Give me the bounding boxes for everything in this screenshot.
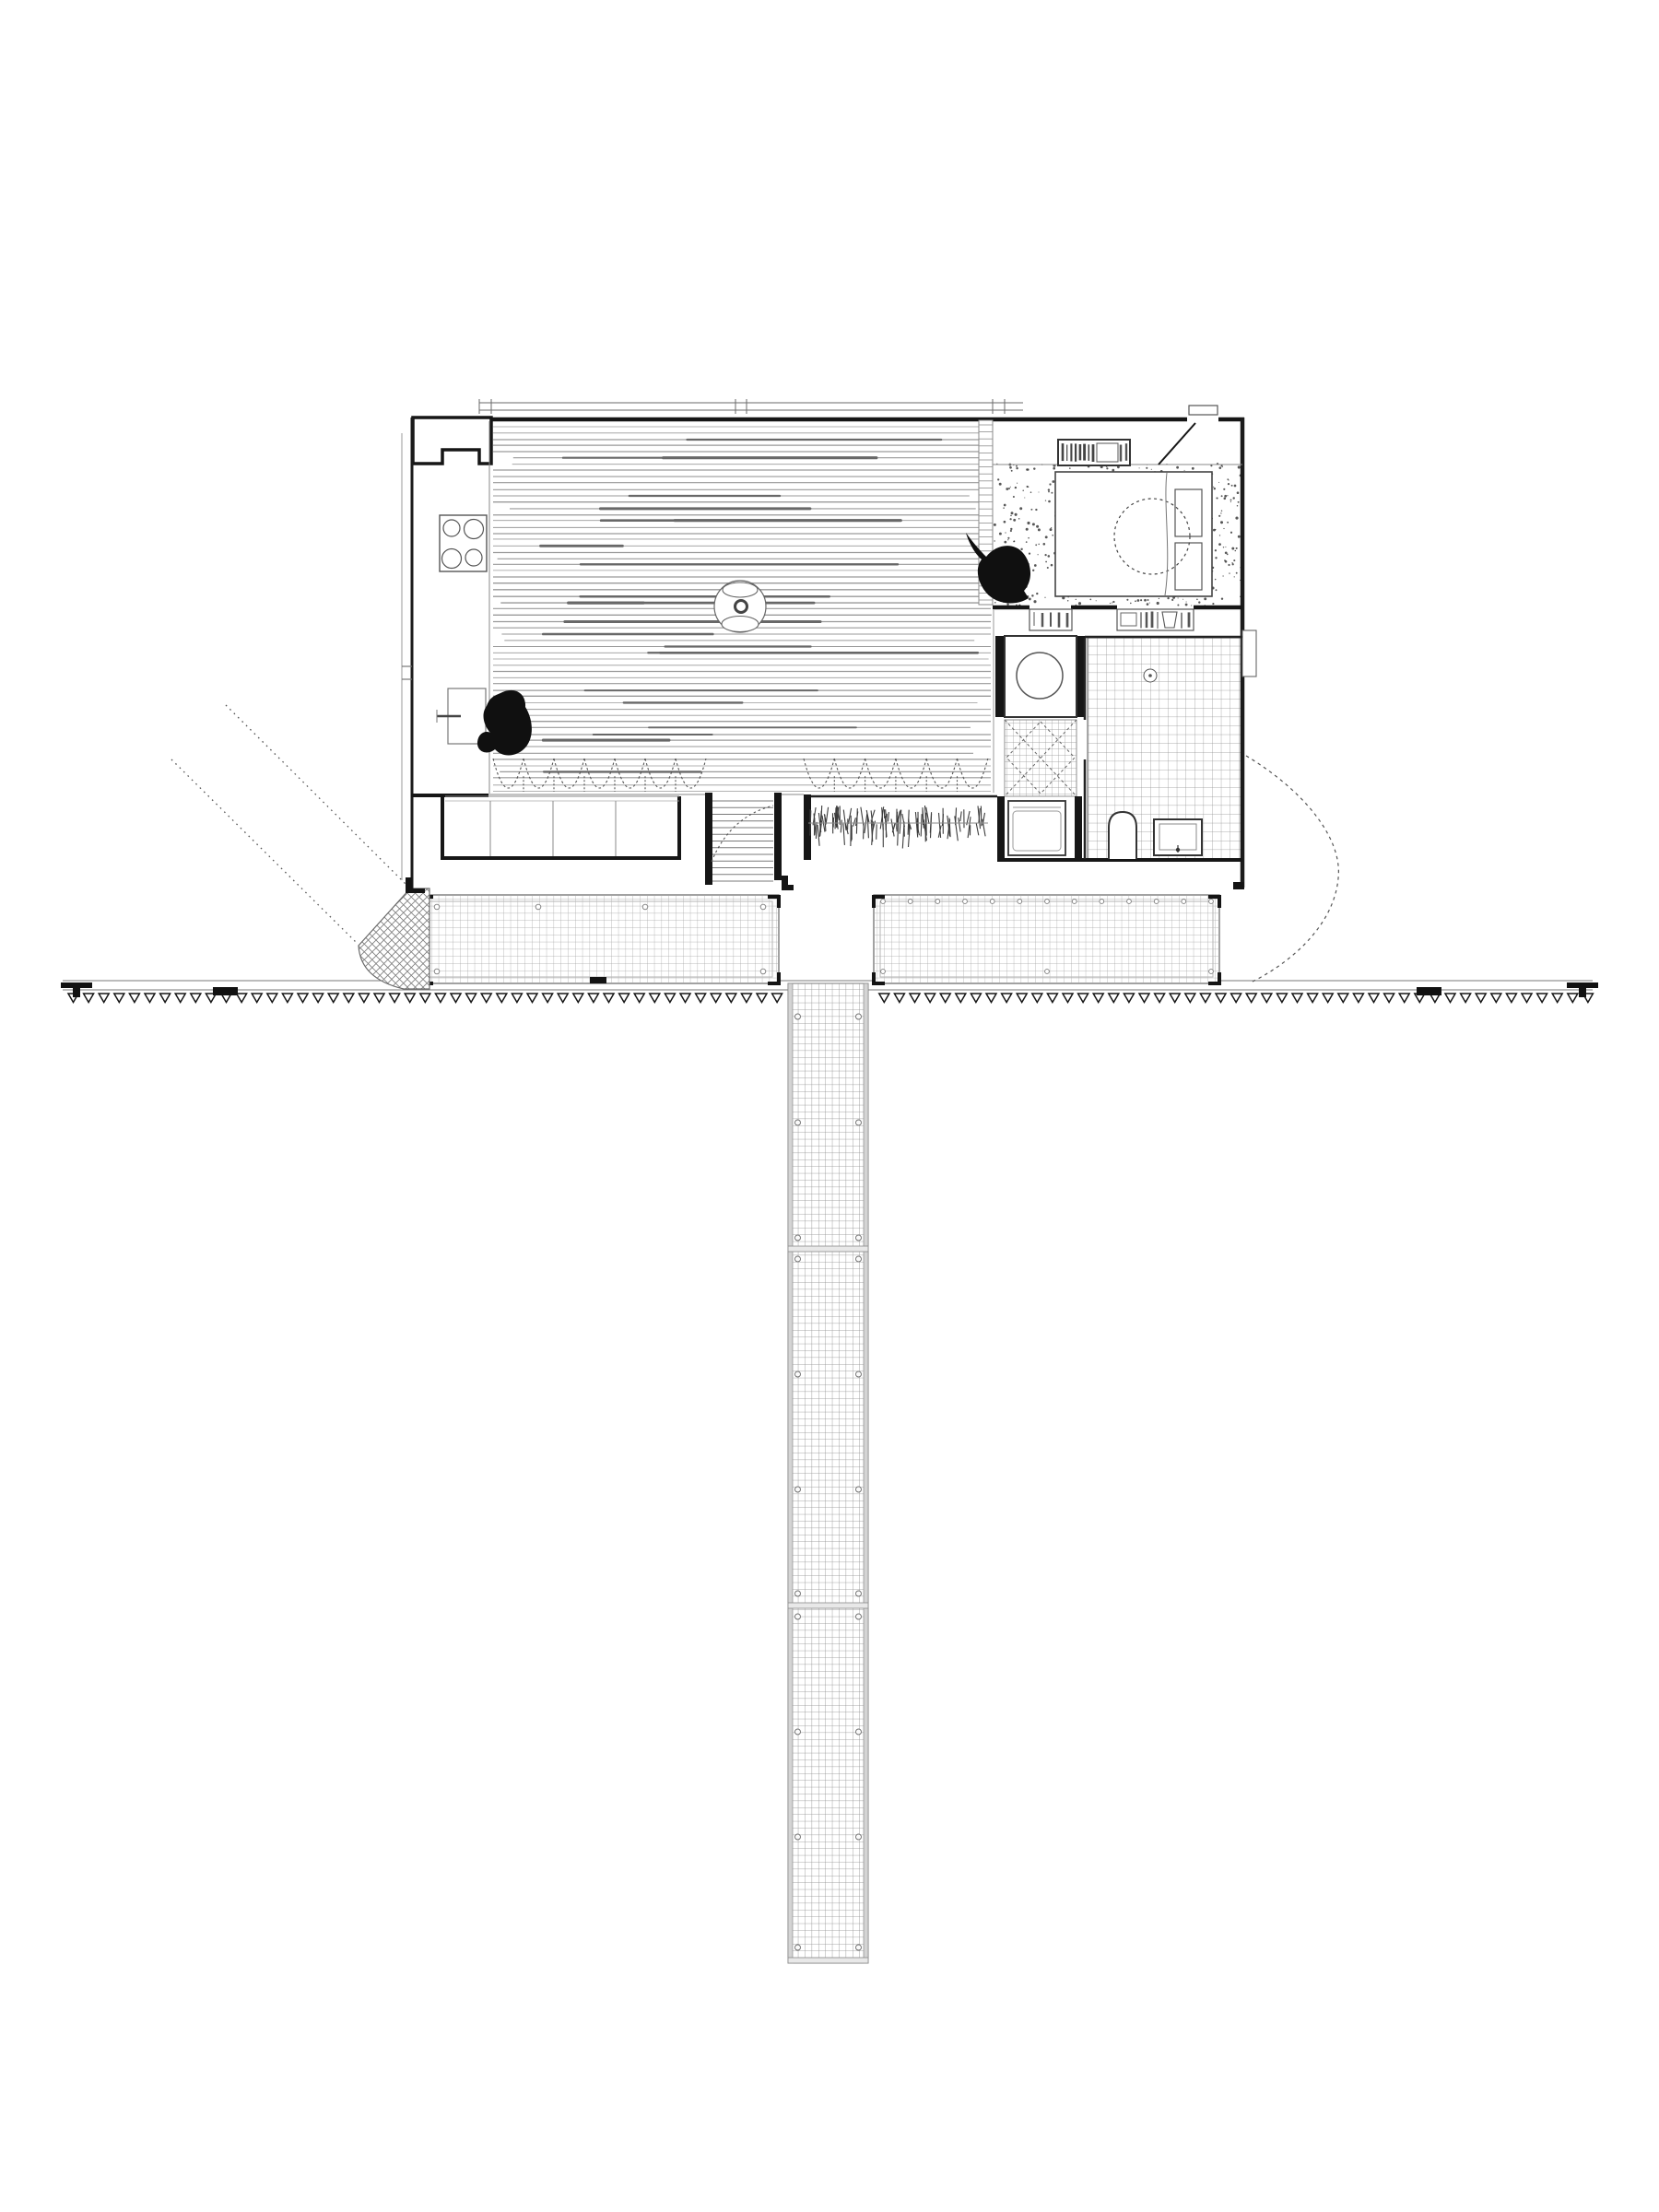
- bedroom-carpet: [1009, 466, 1012, 469]
- pier-fixings: [795, 1256, 801, 1262]
- bedroom-carpet: [1030, 491, 1032, 493]
- shore-anchor: [213, 987, 238, 995]
- deck-fixings: [881, 970, 886, 974]
- bedroom-carpet: [1051, 564, 1053, 567]
- deck-left: [422, 895, 779, 983]
- bedroom-carpet: [1051, 492, 1053, 494]
- deck-fixings: [760, 904, 766, 910]
- bedroom-carpet: [1033, 467, 1035, 469]
- bedroom-carpet: [1213, 487, 1214, 488]
- deck-right: [874, 895, 1219, 983]
- east-corner-bracket: [1233, 882, 1244, 889]
- bedroom-carpet: [1224, 498, 1227, 500]
- bedroom-carpet: [1013, 519, 1016, 522]
- bedroom-carpet: [1215, 557, 1217, 559]
- bedroom-carpet: [1006, 488, 1008, 490]
- bedroom-carpet: [1076, 599, 1077, 600]
- bedroom-carpet: [1006, 603, 1008, 605]
- bedroom-carpet: [1213, 529, 1216, 532]
- bedroom-carpet: [1223, 547, 1224, 547]
- bedroom-carpet: [1016, 467, 1018, 469]
- bedroom-carpet: [1221, 597, 1223, 599]
- bedroom-carpet: [1017, 483, 1018, 484]
- deck-fixings: [535, 904, 541, 910]
- pier-boardwalk: [864, 983, 868, 1963]
- bedroom-carpet: [1044, 597, 1045, 598]
- deck-fixings: [1182, 900, 1186, 904]
- bedroom-carpet: [1182, 599, 1183, 600]
- pier-fixings: [856, 1614, 862, 1619]
- bedroom-carpet: [1112, 603, 1112, 604]
- bedroom-carpet: [1191, 605, 1192, 606]
- deck-fixings: [1100, 900, 1104, 904]
- doormat-rug: [877, 824, 877, 840]
- bedroom-carpet: [1204, 597, 1206, 600]
- entry-door-gap: [1187, 414, 1218, 424]
- bedroom-carpet: [1010, 530, 1012, 532]
- pier-fixings: [856, 1945, 862, 1950]
- deck-fixings: [908, 900, 912, 904]
- bedroom-carpet: [1130, 603, 1132, 605]
- pier-fixings: [856, 1487, 862, 1492]
- bedroom-carpet: [1231, 485, 1233, 487]
- bedroom-carpet: [1234, 576, 1235, 577]
- pier-fixings: [795, 1235, 801, 1241]
- bedroom-carpet: [1218, 515, 1220, 517]
- bedroom-carpet: [1238, 535, 1241, 538]
- bedroom-carpet: [1010, 515, 1012, 517]
- bedroom-carpet: [1196, 598, 1198, 600]
- bedroom-carpet: [1228, 564, 1230, 566]
- pier-fixings: [795, 1729, 801, 1735]
- bedroom-carpet: [1019, 507, 1022, 510]
- doormat-rug: [864, 824, 865, 840]
- bedroom-carpet: [1216, 589, 1218, 591]
- bedroom-carpet: [1225, 560, 1228, 563]
- pier-fixings: [795, 1014, 801, 1019]
- bedroom-carpet: [1135, 600, 1136, 602]
- bedroom-carpet: [1139, 467, 1140, 468]
- pier-fixings: [856, 1591, 862, 1596]
- page: [0, 0, 1659, 2212]
- stove-wall: [995, 636, 1005, 717]
- deck-fixings: [1127, 900, 1132, 904]
- bedroom-carpet: [1022, 490, 1023, 491]
- pier-fixings: [795, 1945, 801, 1950]
- pillow: [1175, 543, 1202, 590]
- bedroom-carpet: [994, 602, 996, 604]
- deck-fixings: [1045, 970, 1050, 974]
- bedroom-carpet: [1215, 579, 1216, 580]
- bedroom-carpet: [1184, 470, 1185, 471]
- basin-on-shelf: [1162, 612, 1177, 628]
- deck-fixings: [881, 900, 886, 904]
- bedroom-carpet: [1218, 482, 1219, 483]
- bedroom-carpet: [994, 524, 996, 526]
- bedroom-carpet: [1052, 535, 1053, 536]
- bedroom-carpet: [1106, 467, 1108, 469]
- step-jamb: [705, 793, 712, 885]
- bedroom-carpet: [1231, 562, 1232, 563]
- pier-boardwalk: [788, 983, 868, 1963]
- bedroom-carpet: [1036, 593, 1038, 594]
- bedroom-carpet: [1222, 575, 1223, 576]
- bedroom-carpet: [1171, 599, 1173, 601]
- bedroom-carpet: [1151, 469, 1152, 470]
- bedroom-carpet: [1007, 539, 1008, 540]
- pier-boardwalk: [793, 983, 864, 1963]
- deck-fixings: [1209, 970, 1214, 974]
- bedroom-carpet: [1067, 600, 1069, 602]
- bedroom-carpet: [1225, 547, 1226, 547]
- bedroom-carpet: [1045, 535, 1048, 538]
- bedroom-carpet: [1032, 523, 1035, 525]
- bedroom-carpet: [1051, 527, 1052, 528]
- bedroom-carpet: [1186, 601, 1187, 602]
- bedroom-carpet: [1008, 488, 1010, 489]
- bedroom-carpet: [1004, 504, 1006, 507]
- bedroom-carpet: [1214, 488, 1216, 489]
- bedroom-carpet: [1009, 518, 1011, 520]
- bedroom-carpet: [1027, 468, 1029, 470]
- bedroom-carpet: [1018, 518, 1020, 520]
- bedroom-carpet: [1007, 537, 1009, 539]
- bedroom-carpet: [1045, 500, 1046, 500]
- bedroom-carpet: [1028, 487, 1029, 488]
- bedroom-carpet: [1053, 467, 1055, 470]
- bedroom-carpet: [1029, 552, 1030, 554]
- shore-anchor: [1417, 987, 1441, 995]
- bedroom-carpet: [1223, 488, 1225, 490]
- bedroom-carpet: [1233, 559, 1235, 561]
- bedroom-carpet: [1126, 599, 1128, 601]
- bedroom-carpet: [1230, 501, 1231, 502]
- bedroom-carpet: [1220, 521, 1223, 524]
- bedroom-carpet: [1178, 597, 1179, 598]
- pier-fixings: [856, 1014, 862, 1019]
- bedroom-carpet: [1220, 512, 1221, 513]
- bedroom-carpet: [1228, 483, 1230, 485]
- bedroom-carpet: [1112, 601, 1114, 603]
- bedroom-fixtures: [1121, 613, 1136, 626]
- bedroom-carpet: [1198, 601, 1200, 603]
- bedroom-carpet: [1048, 555, 1051, 558]
- bedroom-carpet: [1016, 465, 1018, 467]
- bedroom-carpet: [1026, 541, 1028, 543]
- pier-fixings: [856, 1834, 862, 1840]
- bedroom-carpet: [1032, 570, 1034, 571]
- fan-blade: [722, 617, 759, 632]
- pier-boardwalk: [788, 983, 793, 1963]
- entry-landing: [1189, 406, 1218, 415]
- bedroom-carpet: [1030, 509, 1032, 511]
- bedroom-carpet: [1078, 602, 1081, 605]
- pier-fixings: [856, 1120, 862, 1125]
- bedroom-carpet: [1236, 572, 1238, 574]
- bedroom-carpet: [1149, 603, 1150, 604]
- bedroom-carpet: [1004, 521, 1006, 524]
- bedroom-carpet: [1029, 597, 1031, 600]
- deck-fixings: [642, 904, 648, 910]
- pier-fixings: [856, 1371, 862, 1377]
- bedroom-carpet: [1014, 540, 1016, 542]
- deck-fixings: [1072, 900, 1077, 904]
- bedroom-carpet: [1005, 532, 1006, 533]
- washing-machine: [1008, 801, 1065, 855]
- bedroom-carpet: [1003, 507, 1005, 509]
- bedroom-carpet: [1147, 603, 1149, 606]
- wood-stove: [1017, 653, 1063, 699]
- bedroom-carpet: [1147, 599, 1149, 601]
- bedroom-carpet: [1015, 513, 1018, 516]
- deck-fixings: [963, 900, 968, 904]
- east-wall-nib: [1242, 630, 1256, 677]
- bedroom-carpet: [1026, 528, 1029, 531]
- bedroom-carpet: [1011, 512, 1014, 514]
- bedroom-carpet: [1185, 604, 1188, 606]
- pier-joint: [788, 1246, 868, 1252]
- bedroom-carpet: [1015, 487, 1017, 488]
- bedroom-carpet: [1096, 600, 1097, 601]
- bedroom-carpet: [1235, 517, 1238, 520]
- bedroom-carpet: [1031, 594, 1033, 596]
- pier-end-cap: [788, 1958, 868, 1963]
- bedroom-carpet: [1038, 491, 1039, 492]
- bedroom-carpet: [1219, 535, 1220, 535]
- deck-fixings: [1045, 900, 1050, 904]
- bedroom-carpet: [1038, 528, 1041, 531]
- bedroom-carpet: [1049, 483, 1051, 485]
- pier-fixings: [795, 1591, 801, 1596]
- bedroom-carpet: [1227, 554, 1229, 556]
- deck-fixings: [760, 969, 766, 974]
- bedroom-carpet: [1238, 501, 1240, 503]
- bedroom-carpet: [1224, 495, 1227, 498]
- bedroom-carpet: [1043, 543, 1046, 546]
- bedroom-carpet: [1038, 554, 1039, 555]
- bedroom-carpet: [1112, 469, 1114, 472]
- bedroom-carpet: [1140, 599, 1142, 601]
- bedroom-carpet: [1218, 543, 1221, 546]
- step-jamb: [774, 793, 782, 880]
- bedroom-carpet: [1221, 495, 1223, 497]
- bedroom-carpet: [1234, 485, 1237, 488]
- sink-tap: [1176, 848, 1180, 852]
- bedroom-carpet: [1048, 491, 1050, 493]
- burner: [442, 549, 462, 569]
- bedroom-carpet: [1237, 491, 1240, 494]
- bedroom-carpet: [1011, 470, 1013, 472]
- bedroom-carpet: [1227, 478, 1229, 480]
- doormat-rug: [816, 822, 817, 839]
- bedroom-carpet: [1236, 547, 1238, 549]
- bedroom-carpet: [1033, 600, 1036, 603]
- burner: [465, 520, 484, 539]
- bedroom-carpet: [1027, 522, 1030, 524]
- bedroom-carpet: [1217, 497, 1218, 499]
- fan-hub: [735, 601, 747, 613]
- pier-fixings: [856, 1235, 862, 1241]
- pier-fixings: [795, 1834, 801, 1840]
- bedroom-carpet: [994, 540, 994, 541]
- utility-wall: [1075, 796, 1082, 860]
- bedroom-carpet: [1110, 603, 1111, 604]
- bedroom-carpet: [1034, 564, 1037, 567]
- bedroom-carpet: [1069, 467, 1071, 469]
- bedroom-carpet: [1004, 541, 1006, 544]
- bedroom-carpet: [1159, 598, 1159, 599]
- bedroom-carpet: [1227, 522, 1229, 524]
- bedroom-carpet: [1146, 467, 1147, 469]
- deck-fixings: [434, 969, 440, 974]
- bedroom-carpet: [1035, 544, 1037, 546]
- bedroom-carpet: [1045, 561, 1047, 563]
- bedroom-carpet: [1232, 497, 1234, 499]
- bedroom-carpet: [1038, 544, 1040, 546]
- bedroom-carpet: [1230, 499, 1232, 500]
- bedroom-carpet: [1229, 572, 1230, 573]
- bedroom-carpet: [1048, 500, 1051, 503]
- pier-fixings: [856, 1729, 862, 1735]
- bedroom-carpet: [1013, 496, 1015, 498]
- bedroom-carpet: [1227, 495, 1228, 496]
- pier-fixings: [795, 1120, 801, 1125]
- bedroom-carpet: [1177, 604, 1179, 606]
- bedroom-carpet: [1231, 547, 1234, 550]
- bedroom-carpet: [1050, 528, 1053, 531]
- bedroom-carpet: [1210, 465, 1212, 466]
- bedroom-carpet: [1089, 599, 1091, 601]
- bedroom-carpet: [1024, 497, 1025, 498]
- bedroom-carpet: [1176, 466, 1179, 469]
- bedroom-carpet: [1223, 528, 1224, 529]
- architectural-floor-plan: [0, 0, 1659, 2212]
- bedroom-carpet: [1157, 602, 1159, 605]
- deck-fixings: [434, 904, 440, 910]
- pier-joint: [788, 1603, 868, 1608]
- deck-fixings: [990, 900, 994, 904]
- deck-fixings: [1018, 900, 1022, 904]
- bedroom-carpet: [997, 478, 999, 480]
- deck-edge-cleat: [590, 977, 606, 983]
- toilet: [1109, 812, 1136, 859]
- burner: [443, 520, 460, 536]
- bedroom-carpet: [1167, 597, 1169, 599]
- bedroom-carpet: [999, 483, 1002, 486]
- bedroom-carpet: [1035, 509, 1037, 511]
- shelf-box: [1097, 443, 1118, 462]
- bedroom-carpet: [1212, 603, 1214, 605]
- pillow: [1175, 489, 1202, 536]
- utility-and-bath-fixtures: [1148, 674, 1152, 677]
- bedroom-carpet: [1047, 567, 1049, 569]
- bedroom-carpet: [1010, 487, 1011, 488]
- bedroom-carpet: [1192, 467, 1194, 470]
- fan-blade: [723, 582, 758, 597]
- pier-fixings: [856, 1256, 862, 1262]
- bedroom-carpet: [1028, 537, 1030, 539]
- bedroom-carpet: [1237, 505, 1239, 507]
- bedroom-carpet: [1230, 532, 1232, 534]
- bedroom-carpet: [1221, 465, 1223, 466]
- bedroom-carpet: [1048, 488, 1050, 490]
- deck-left: [422, 895, 779, 983]
- deck-fixings: [1154, 900, 1159, 904]
- bedroom-carpet: [1137, 599, 1140, 602]
- utility-wall: [997, 796, 1005, 860]
- bedroom-carpet: [999, 533, 1002, 535]
- pier-fixings: [795, 1371, 801, 1377]
- deck-fixings: [1209, 900, 1214, 904]
- burner: [465, 549, 482, 566]
- bedroom-carpet: [1215, 549, 1217, 551]
- bedroom-carpet: [1234, 550, 1236, 552]
- bedroom-carpet: [1020, 548, 1022, 550]
- pier-fixings: [795, 1487, 801, 1492]
- bedroom-carpet: [1010, 528, 1012, 530]
- bedroom-carpet: [1036, 525, 1039, 528]
- bedroom-carpet: [1052, 480, 1054, 483]
- bedroom-carpet: [1218, 466, 1221, 469]
- bedroom-carpet: [1044, 554, 1046, 556]
- bedroom-carpet: [1221, 511, 1222, 512]
- bedroom-carpet: [1238, 465, 1241, 468]
- pier-fixings: [795, 1614, 801, 1619]
- deck-fixings: [935, 900, 940, 904]
- bedroom-carpet: [1144, 599, 1147, 602]
